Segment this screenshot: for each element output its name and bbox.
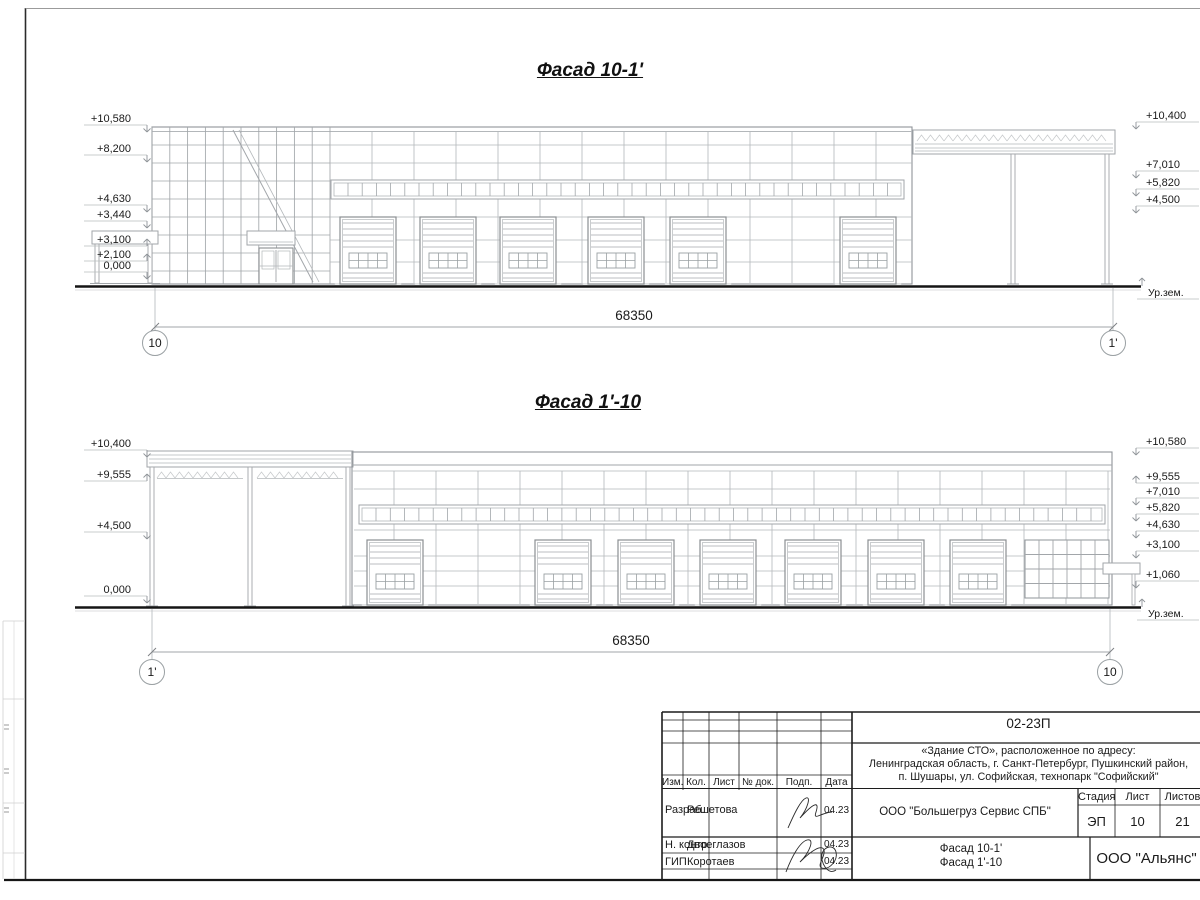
drawing-text: +10,400 [1146,110,1186,122]
drawing-text: 0,000 [103,260,131,272]
drawing-text: +7,010 [1146,486,1180,498]
garage-door [613,540,679,608]
drawing-text: +9,555 [97,469,131,481]
drawing-text: +10,400 [91,438,131,450]
sheet-number: 10 [1115,814,1160,829]
row-role-gip: ГИП [665,856,687,868]
dimension-line: 68350101' [143,288,1126,356]
elevation-mark: +10,400 [84,438,151,457]
client-name: ООО "Большегруз Сервис СПБ" [854,806,1076,818]
drawing-text: +8,200 [97,143,131,155]
axis-bubble: 10 [1098,660,1123,685]
elevation-mark: +9,555 [1133,471,1200,483]
stage-label: Стадия [1078,791,1115,803]
company-name: ООО "Альянс" [1090,850,1200,867]
project-address-line-3: п. Шушары, ул. Софийская, технопарк "Соф… [854,771,1200,783]
drawing-text: +10,580 [91,113,131,125]
garage-door [695,540,761,608]
drawing-text: 10 [148,336,162,350]
row-name-gip: Коротаев [687,856,735,868]
row-date-ncontrol: 04.23 [821,839,852,850]
drawing-text: +3,100 [97,234,131,246]
drawing-text: 0,000 [103,584,131,596]
row-date-developer: 04.23 [821,805,852,816]
drawing-text: +4,500 [97,520,131,532]
elevation-mark: +3,100 [1133,539,1200,558]
elevation-mark: +7,010 [1133,159,1200,178]
drawing-text: +4,630 [97,193,131,205]
drawing-text: +5,820 [1146,502,1180,514]
drawing-text: 1' [148,665,157,679]
drawing-sheet: +10,580+8,200+4,630+3,440+3,100+2,1000,0… [0,0,1200,900]
elevation-mark: 0,000 [84,260,151,279]
canopy-structure [913,130,1115,284]
sheet-title-line-2: Фасад 1'-10 [852,857,1090,869]
axis-bubble: 1' [1101,331,1126,356]
drawing-text: 68350 [615,308,653,323]
sheet-label: Лист [1115,791,1160,803]
drawing-text: +5,820 [1146,177,1180,189]
drawing-text: +9,555 [1146,471,1180,483]
elevation-mark: +8,200 [84,143,151,162]
garage-door [335,217,401,287]
elevation-mark: +10,580 [84,113,151,132]
garage-door [835,217,901,287]
elevation-mark: +4,500 [84,520,151,539]
sheets-label: Листов [1160,791,1200,803]
garage-door [780,540,846,608]
row-name-developer: Решетова [687,804,737,816]
garage-door [863,540,929,608]
clerestory-band [331,180,904,199]
col-header-podp: Подп. [777,777,821,788]
dimension-line: 683501'10 [140,609,1123,685]
elevation-mark: +10,580 [1133,436,1200,455]
ground-level-mark: Ур.зем. [1137,599,1199,620]
stage-value: ЭП [1078,814,1115,829]
axis-bubble: 1' [140,660,165,685]
clerestory-band [359,505,1105,524]
project-address-line-2: Ленинградская область, г. Санкт-Петербур… [854,758,1200,770]
project-address-line-1: «Здание СТО», расположенное по адресу: [854,745,1200,757]
drawing-text: Ур.зем. [1148,287,1184,299]
facade-10-1-title: Фасад 10-1' [440,60,740,82]
drawing-text: +7,010 [1146,159,1180,171]
elevation-mark: +4,630 [1133,519,1200,538]
elevation-mark: +4,500 [1133,194,1200,213]
drawing-text: 10 [1103,665,1117,679]
garage-door [495,217,561,287]
axis-bubble: 10 [143,331,168,356]
drawing-text: +4,500 [1146,194,1180,206]
drawing-text: +3,100 [1146,539,1180,551]
elevation-mark: +1,060 [1133,569,1200,588]
elevation-mark: 0,000 [84,584,151,603]
col-header-izm: Изм. [662,777,683,788]
facade-1-10-drawing: +10,400+9,555+4,5000,000+10,580+9,555+7,… [75,436,1199,685]
drawing-text: +1,060 [1146,569,1180,581]
drawing-text: 1' [1109,336,1118,350]
col-header-data: Дата [821,777,852,788]
sheets-total: 21 [1160,814,1200,829]
elevation-mark: +9,555 [84,469,151,481]
col-header-doc: № док. [739,777,777,788]
drawing-text: +3,440 [97,209,131,221]
glazed-section [1025,540,1109,598]
row-date-gip: 04.23 [821,856,852,867]
elevation-mark: +10,400 [1133,110,1200,129]
garage-door [945,540,1011,608]
drawing-text: Ур.зем. [1148,608,1184,620]
doc-number: 02-23П [854,716,1200,731]
garage-door [665,217,731,287]
col-header-kol: Кол. [683,777,709,788]
ground-level-mark: Ур.зем. [1137,278,1199,299]
drawing-text: +10,580 [1146,436,1186,448]
canopy-structure [146,451,354,606]
garage-door [362,540,428,608]
garage-door [583,217,649,287]
facade-10-1-drawing: +10,580+8,200+4,630+3,440+3,100+2,1000,0… [75,110,1199,356]
sheet-title-line-1: Фасад 10-1' [852,843,1090,855]
garage-door [530,540,596,608]
garage-door [415,217,481,287]
drawing-text: 68350 [612,633,650,648]
drawing-text: +4,630 [1146,519,1180,531]
col-header-list: Лист [709,777,739,788]
facade-1-10-title: Фасад 1'-10 [438,392,738,414]
entrance-door [247,231,295,284]
elevation-mark: +3,440 [84,209,151,228]
row-name-ncontrol: Двоеглазов [687,839,745,851]
